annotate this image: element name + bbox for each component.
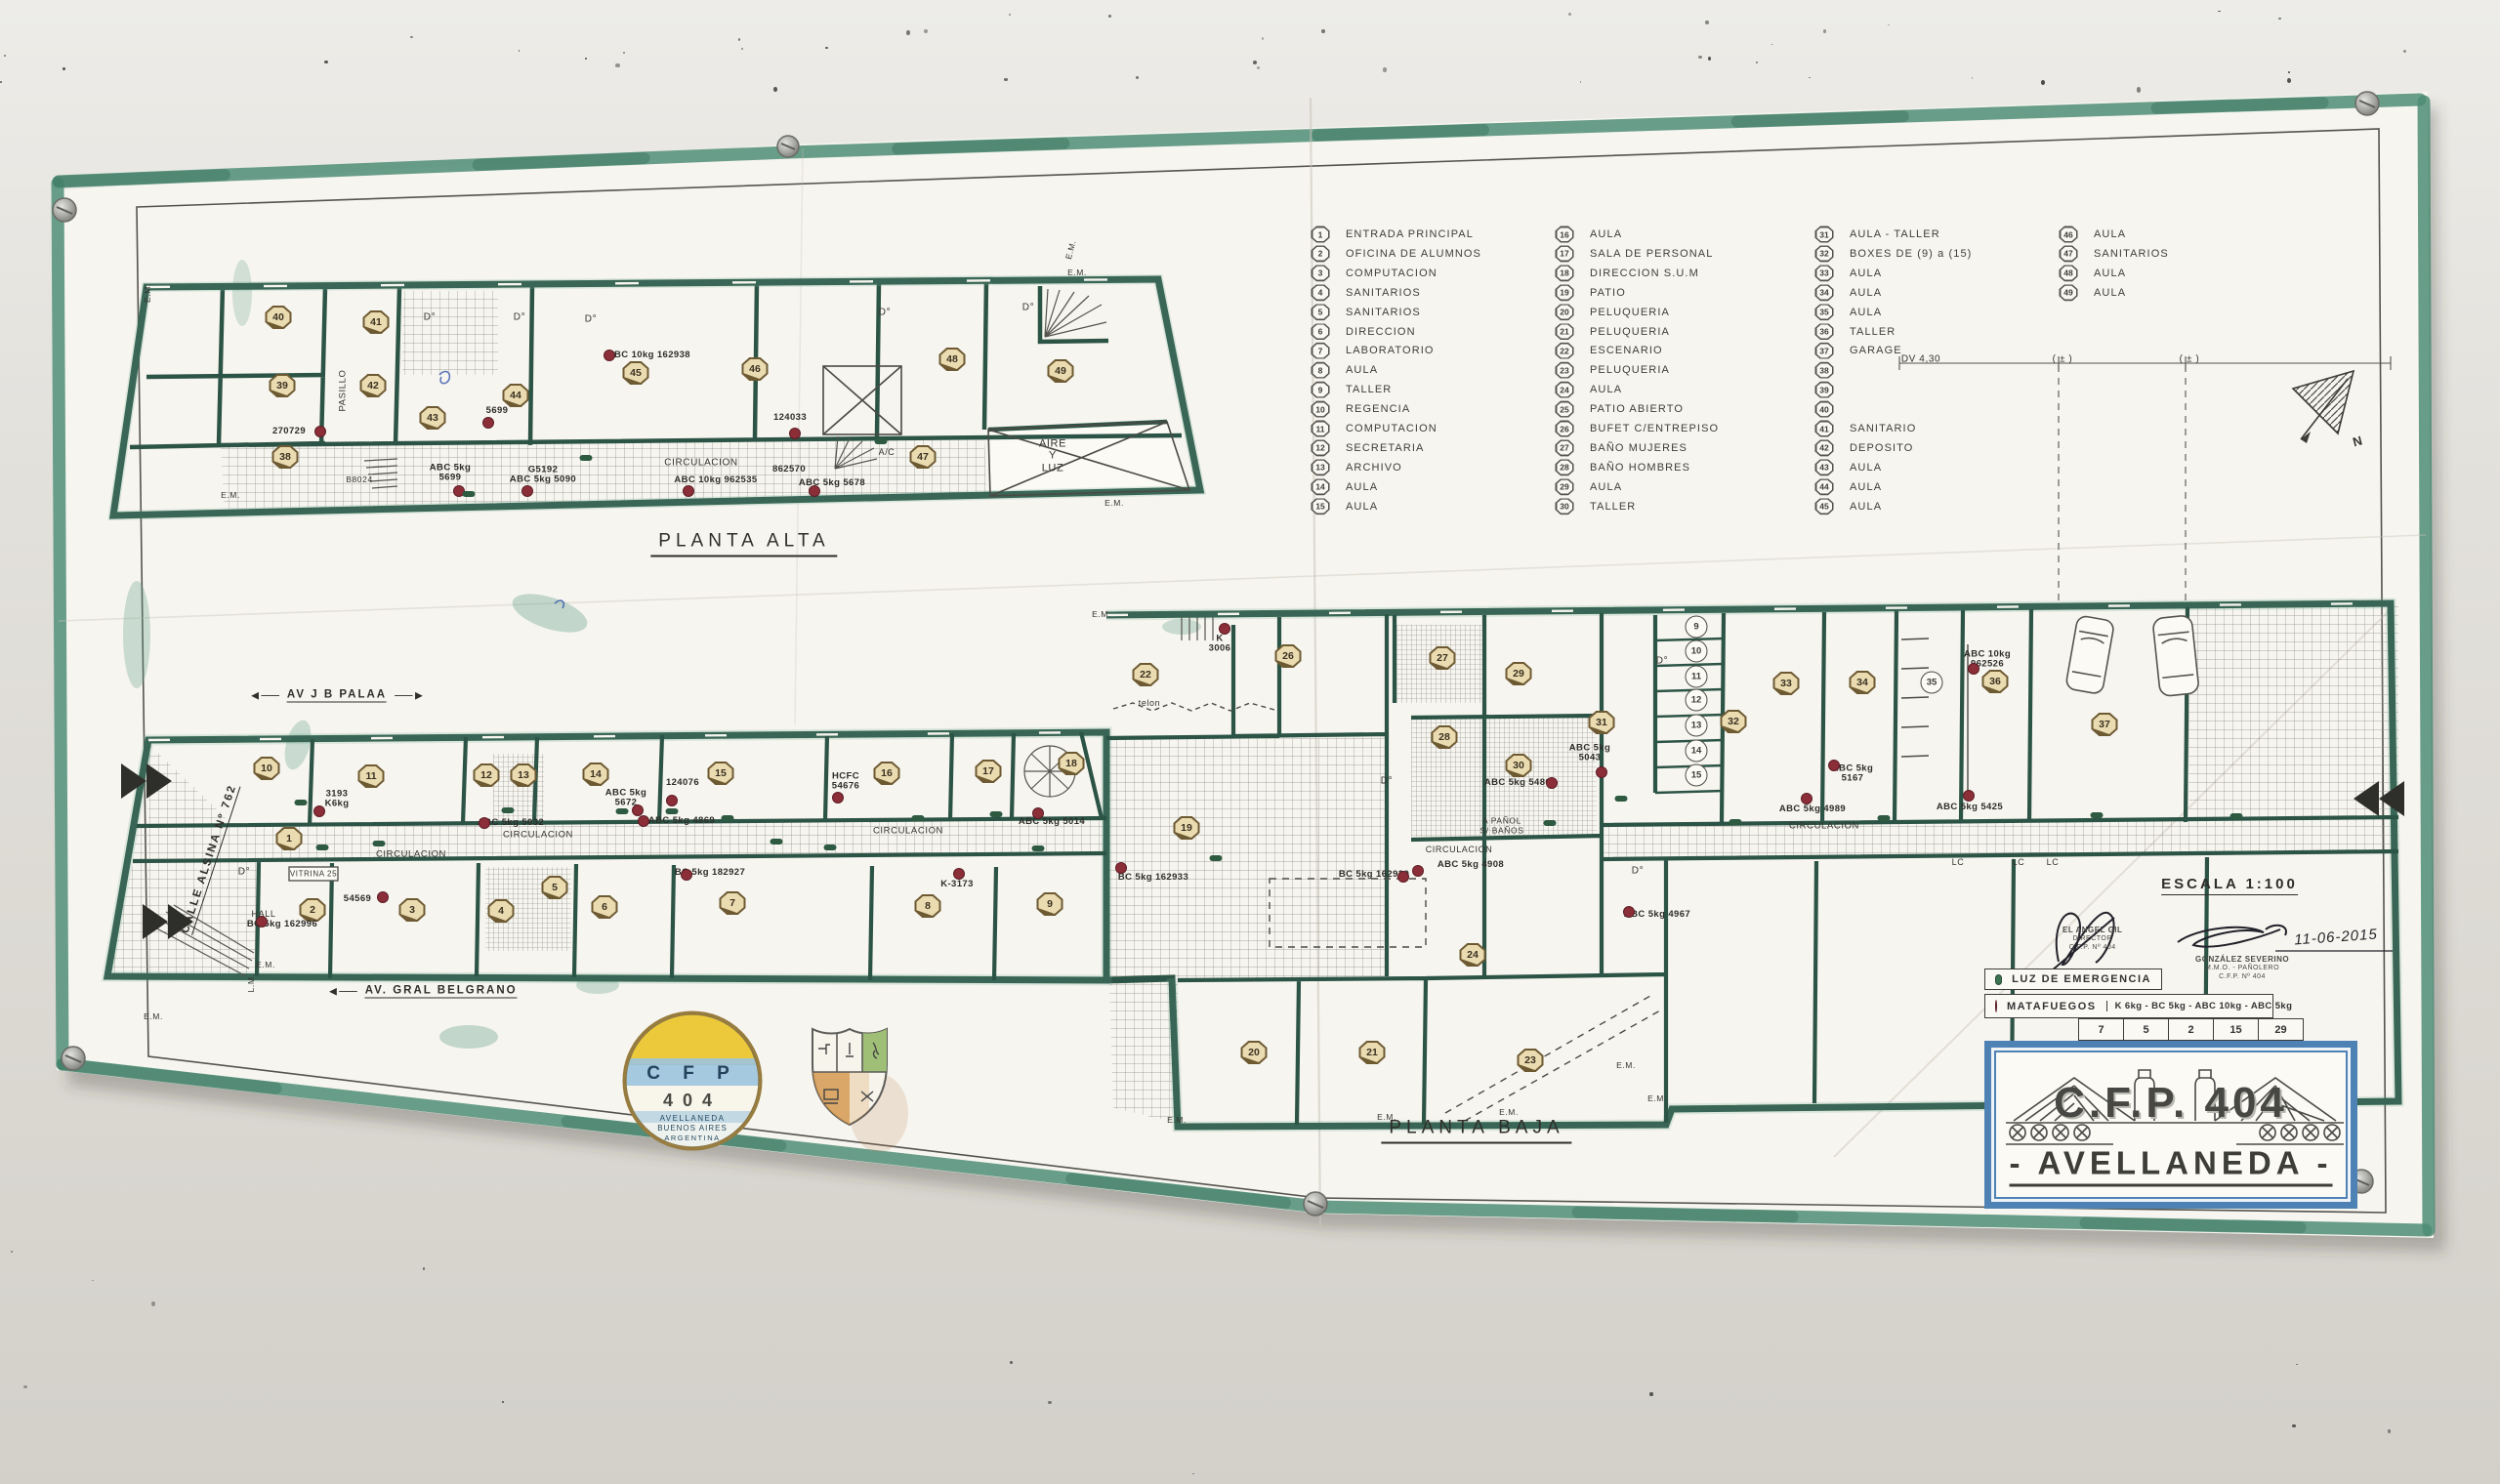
wall-speck xyxy=(1136,76,1139,80)
wall-speck xyxy=(738,38,740,41)
wall-speck xyxy=(2041,80,2045,85)
wall-speck xyxy=(1048,1401,1052,1405)
wall-speck xyxy=(2288,71,2290,73)
wall-speck xyxy=(924,29,928,32)
wall-speck xyxy=(519,50,521,52)
wall-speck xyxy=(1253,61,1257,64)
wall-speck xyxy=(2278,18,2281,20)
wall-speck xyxy=(11,1251,14,1253)
wall-speck xyxy=(0,81,2,83)
wall-speck xyxy=(23,1385,27,1388)
wall-speck xyxy=(2218,11,2221,13)
wall-speck xyxy=(2292,1424,2296,1428)
wall-speck xyxy=(2403,50,2407,53)
wall-speck xyxy=(741,48,743,50)
wall-speck xyxy=(1568,13,1571,16)
wall-speck xyxy=(2296,1364,2298,1365)
wall-speck xyxy=(1004,78,1007,81)
wall-speck xyxy=(1262,37,1264,40)
wall-speck xyxy=(1649,1392,1653,1397)
wall-speck xyxy=(825,47,828,50)
wall-speck xyxy=(324,61,328,63)
wall-speck xyxy=(502,1401,504,1403)
wall-speck xyxy=(1823,29,1827,32)
wall-speck xyxy=(92,1280,94,1281)
wall-speck xyxy=(1010,1361,1013,1364)
wall-speck xyxy=(1321,29,1325,34)
wall-speck xyxy=(4,55,6,58)
wall-speck xyxy=(410,36,412,38)
wall-speck xyxy=(1383,67,1387,71)
wall-speck xyxy=(585,58,588,60)
wall-speck xyxy=(1809,77,1811,78)
wall-speck xyxy=(773,87,777,92)
wall-speck xyxy=(1698,56,1702,59)
wall-speck xyxy=(2287,78,2291,83)
wall-speck xyxy=(1888,24,1890,25)
wall-speck xyxy=(623,52,626,54)
wall-speck xyxy=(1708,57,1711,61)
wall-speck xyxy=(1756,62,1758,63)
wall-speck xyxy=(906,30,909,35)
wall-speck xyxy=(1192,1473,1194,1475)
wall-speck xyxy=(1771,44,1773,45)
wall-speck xyxy=(1705,21,1709,23)
wall-speck xyxy=(2388,1429,2391,1433)
wall-speck xyxy=(1108,15,1111,19)
wall-speck xyxy=(1257,66,1260,69)
wall-speckles xyxy=(0,0,2500,1484)
wall-speck xyxy=(1009,14,1011,16)
wall-speck xyxy=(151,1301,155,1306)
wall-speck xyxy=(1972,77,1974,79)
wall-speck xyxy=(423,1267,425,1270)
wall-speck xyxy=(615,63,619,67)
wall-speck xyxy=(2137,87,2141,92)
wall-speck xyxy=(1580,81,1582,83)
wall-photo-background: C F P 404 AVELLANEDA BUENOS AIRES ARGENT… xyxy=(0,0,2500,1484)
wall-speck xyxy=(62,67,65,71)
